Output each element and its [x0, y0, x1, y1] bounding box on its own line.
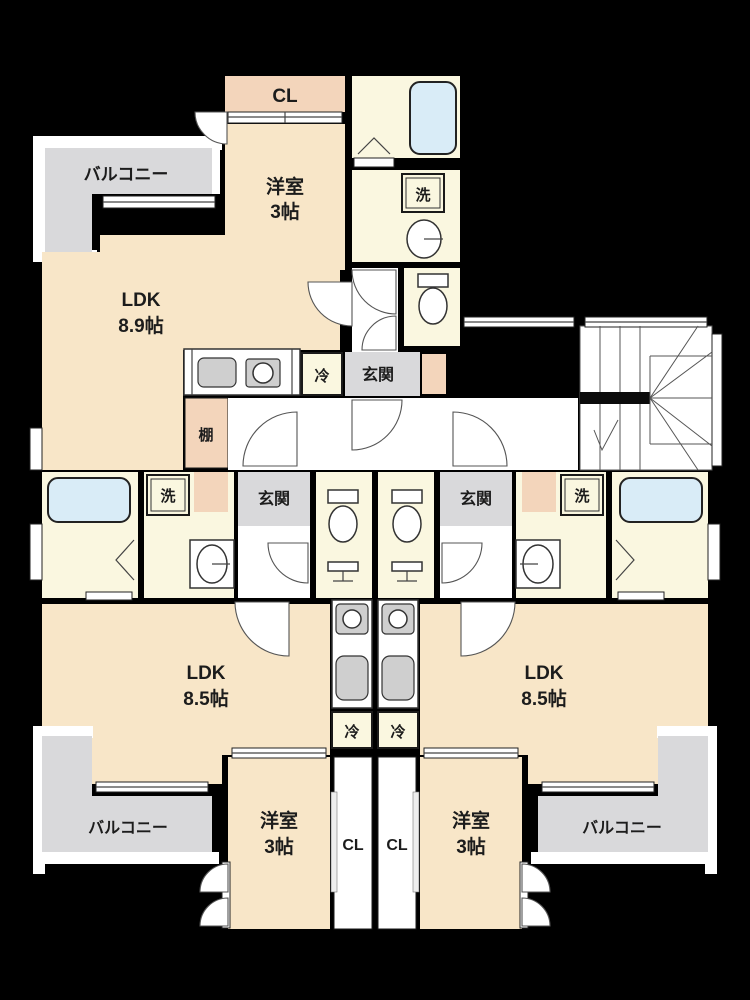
bathroom-right-low-window — [618, 592, 664, 600]
balcony-left-label: バルコニー — [88, 819, 168, 837]
bathtub-left — [48, 478, 130, 522]
western-room-left-casement-1 — [200, 864, 228, 892]
western-room-top-label: 洋室 — [266, 175, 304, 198]
shelf-label: 棚 — [198, 426, 213, 444]
entrance-right-label: 玄関 — [460, 489, 492, 508]
toilet-top-bowl — [419, 288, 447, 324]
western-room-right-casement-2 — [522, 898, 550, 926]
wc-right-shelf — [392, 562, 422, 571]
stair-east-window — [712, 334, 722, 466]
washer-top-label: 洗 — [415, 186, 430, 204]
bathtub-right — [620, 478, 702, 522]
ldk-left-size: 8.5帖 — [183, 687, 228, 710]
kitchen-top-burner — [253, 363, 273, 383]
toilet-left-tank — [328, 490, 358, 503]
western-room-left-casement-2 — [200, 898, 228, 926]
wc-left-shelf — [328, 562, 358, 571]
closet-left-label: CL — [342, 837, 364, 854]
western-room-top-size: 3帖 — [270, 200, 300, 223]
floor-plan: バルコニー CL 洋室 3帖 LDK 8.9帖 冷 — [0, 0, 750, 1000]
toilet-top-tank — [418, 274, 448, 287]
balcony-top-wing — [45, 148, 92, 252]
balcony-top-label: バルコニー — [84, 165, 169, 184]
ldk-right-label: LDK — [524, 663, 563, 684]
ldk-top-label: LDK — [121, 290, 160, 311]
washer-right-label: 洗 — [574, 487, 589, 505]
stairwell — [580, 317, 722, 470]
entrance-top-label: 玄関 — [362, 365, 394, 384]
fridge-top-label: 冷 — [314, 367, 329, 385]
balcony-left-railing-bottom — [33, 852, 219, 864]
kitchen-right-sink — [382, 656, 414, 700]
shoe-cabinet-top — [422, 354, 446, 394]
unit-bottom-left: 洗 玄関 LDK 8.5帖 冷 洋室 3帖 — [30, 472, 372, 929]
unit-bottom-right: 玄関 洗 LDK 8.5帖 冷 洋室 3帖 — [378, 472, 720, 929]
stair-mid-wall — [580, 392, 650, 404]
cabinet-right — [522, 472, 556, 512]
kitchen-left-sink — [336, 656, 368, 700]
western-room-left-size: 3帖 — [264, 835, 294, 858]
kitchen-left-burner — [343, 610, 361, 628]
toilet-right-bowl — [393, 506, 421, 542]
entrance-left-label: 玄関 — [258, 489, 290, 508]
floor-plan-canvas: バルコニー CL 洋室 3帖 LDK 8.9帖 冷 — [0, 0, 750, 1000]
bathroom-left-window — [30, 524, 42, 580]
closet-right-sliding — [413, 792, 419, 892]
washer-left-label: 洗 — [160, 487, 175, 505]
balcony-right-railing-bottom — [531, 852, 717, 864]
bathroom-left-low-window — [86, 592, 132, 600]
fridge-left-label: 冷 — [344, 723, 359, 741]
kitchen-top-sink — [198, 358, 236, 387]
balcony-right-label: バルコニー — [582, 819, 662, 837]
closet-right-label: CL — [386, 837, 408, 854]
fridge-right-label: 冷 — [390, 723, 405, 741]
closet-left-sliding — [331, 792, 337, 892]
balcony-top-railing — [33, 136, 222, 150]
bathtub-top — [410, 82, 456, 154]
western-room-right-casement-1 — [522, 864, 550, 892]
toilet-right-tank — [392, 490, 422, 503]
toilet-left-bowl — [329, 506, 357, 542]
western-room-right-label: 洋室 — [452, 809, 490, 832]
ldk-right-size: 8.5帖 — [521, 687, 566, 710]
western-room-left-label: 洋室 — [260, 809, 298, 832]
bathroom-right-window — [708, 524, 720, 580]
ldk-left-label: LDK — [186, 663, 225, 684]
ldk-top-size: 8.9帖 — [118, 314, 163, 337]
cabinet-left — [194, 472, 228, 512]
western-room-right-size: 3帖 — [456, 835, 486, 858]
kitchen-right-burner — [389, 610, 407, 628]
bathroom-top-window — [354, 158, 394, 167]
closet-top-label: CL — [272, 86, 298, 107]
ldk-top-west-window — [30, 428, 42, 470]
balcony-top-railing-left — [33, 136, 47, 262]
